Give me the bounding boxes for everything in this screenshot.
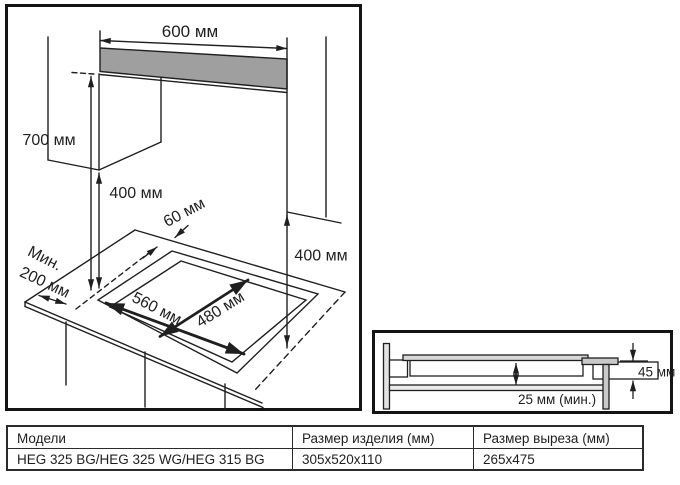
label-hood-clearance: 700 мм [22,132,75,149]
spec-table-cell-product-size: 305x520x110 [293,449,474,469]
section-hob-body [410,360,583,376]
section-shelf [390,385,604,391]
label-cabinet-clearance-left: 400 мм [109,185,162,202]
section-wall [384,344,390,410]
installation-diagrams: 600 мм 700 мм 400 мм 60 мм Мин. 200 мм 5… [0,0,680,480]
label-hood-width: 600 мм [162,22,218,41]
spec-table-cell-cutout-size: 265x475 [474,449,642,469]
manual-page: 600 мм 700 мм 400 мм 60 мм Мин. 200 мм 5… [0,0,680,480]
spec-table-header-models: Модели [8,427,293,449]
label-built-in-height: 45 мм [638,365,675,380]
spec-table-cell-models: HEG 325 BG/HEG 325 WG/HEG 315 BG [8,449,293,469]
label-cabinet-clearance-right: 400 мм [294,248,347,265]
spec-table-header-product-size: Размер изделия (мм) [293,427,474,449]
label-bottom-clearance: 25 мм (мин.) [518,392,596,407]
spec-table: Модели Размер изделия (мм) Размер выреза… [6,425,644,471]
spec-table-header-cutout-size: Размер выреза (мм) [474,427,642,449]
